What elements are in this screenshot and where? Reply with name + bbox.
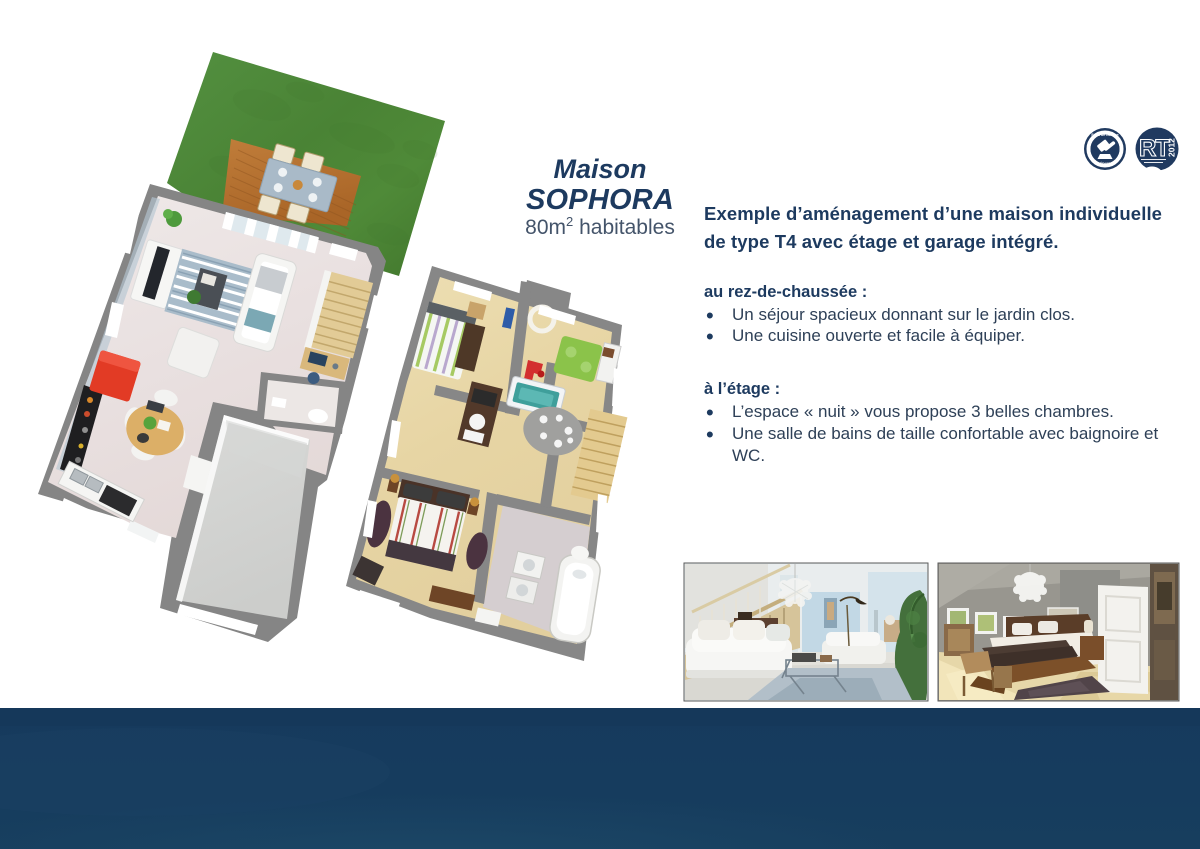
svg-text:RÉDUITS: RÉDUITS [1097, 161, 1113, 166]
svg-text:Frais de Notaire: Frais de Notaire [1091, 133, 1118, 137]
svg-text:2012: 2012 [1167, 138, 1177, 157]
